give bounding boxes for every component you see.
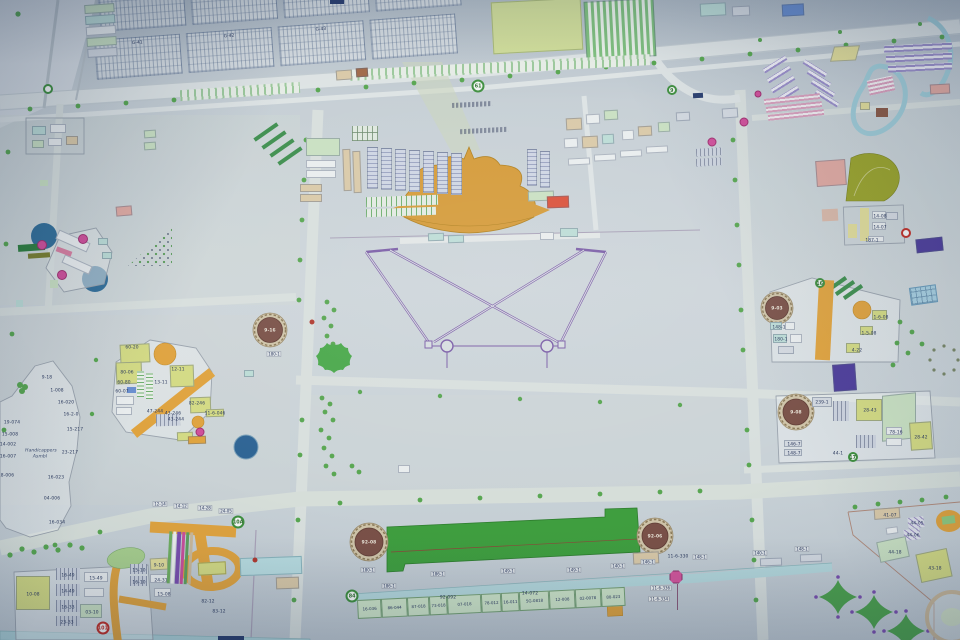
building <box>85 14 116 25</box>
map-label: 43-244 <box>168 417 184 422</box>
red-building <box>547 196 569 209</box>
olive-fan <box>846 153 899 201</box>
map-label: 9-08 <box>790 410 801 415</box>
building <box>40 180 48 186</box>
map-label: 187-1 <box>865 238 878 243</box>
building <box>566 118 583 131</box>
map-label: 11-6-046 <box>205 411 226 416</box>
building <box>782 3 805 16</box>
map-badge <box>196 428 205 437</box>
building <box>146 373 153 399</box>
parking-block <box>369 13 458 59</box>
star-park <box>819 580 857 614</box>
parking-block: G-42 <box>186 27 275 73</box>
building <box>48 138 62 146</box>
map-label: 82-246 <box>189 401 205 406</box>
building <box>833 401 849 421</box>
boxed-label: 11-6-334 <box>648 596 669 602</box>
map-badge: 9 <box>667 85 677 95</box>
map-label: 80-06 <box>120 370 133 375</box>
barracks-block <box>451 153 462 195</box>
map-tag: 186-1 <box>382 583 397 589</box>
map-tag: 149-1 <box>567 567 582 573</box>
map-label: 15-008 <box>2 432 18 437</box>
map-label: 18-006 <box>0 473 14 478</box>
map-label: 78-16 <box>889 430 902 435</box>
barracks-block <box>437 152 448 194</box>
building <box>244 370 254 377</box>
building <box>84 3 115 14</box>
map-tag: 186-1 <box>431 571 446 577</box>
map-badge <box>253 558 258 563</box>
map-label: 60-07 <box>115 389 128 394</box>
map-label: 15-08 <box>157 592 170 597</box>
map-label: 14-072 <box>522 591 538 596</box>
building <box>218 636 244 640</box>
warehouse-cell: 02-0078 <box>575 588 602 608</box>
building <box>620 149 642 157</box>
building <box>306 160 336 168</box>
map-label: 15-217 <box>67 427 83 432</box>
map-tag: 149-1 <box>501 568 516 574</box>
pond-basin <box>909 284 938 306</box>
barracks-block <box>423 151 434 193</box>
building <box>300 184 322 192</box>
boxed-label: 11-6-336 <box>650 585 671 591</box>
map-label: 14-002 <box>0 442 16 447</box>
map-label: 4-22 <box>852 348 862 353</box>
map-tag: 12-14 <box>153 501 168 507</box>
map-badge <box>57 270 67 280</box>
map-tag: 24-05 <box>219 508 234 514</box>
map-label: 16-020 <box>58 400 74 405</box>
building <box>800 554 822 563</box>
map-label: 16-2-0 <box>63 412 78 417</box>
map-badge: 16 <box>815 278 825 288</box>
building <box>676 112 690 122</box>
map-label: 11-6-330 <box>668 554 689 559</box>
map-badge: 17 <box>848 452 858 462</box>
building <box>860 102 870 110</box>
map-label: 60-20 <box>125 345 138 350</box>
building <box>50 124 66 133</box>
map-label: 16-49 <box>61 573 74 578</box>
building <box>137 371 144 397</box>
building <box>276 577 299 590</box>
barracks-block <box>367 147 378 189</box>
map-badge <box>708 138 717 147</box>
left-building-stack <box>84 3 118 60</box>
map-badge: 101 <box>97 622 110 635</box>
building <box>602 134 615 145</box>
building <box>86 25 117 36</box>
barracks-block <box>527 149 537 186</box>
sports-field <box>491 0 584 54</box>
building <box>32 126 46 135</box>
warehouse-cell: 16-036 <box>357 599 382 619</box>
building <box>790 334 802 343</box>
building <box>778 346 794 354</box>
map-label: 14-49 <box>61 589 74 594</box>
building <box>700 2 727 16</box>
map-label: 148-7 <box>787 451 800 456</box>
purple-building <box>915 237 943 254</box>
map-label: 83-12 <box>212 609 225 614</box>
building <box>622 130 635 141</box>
map-label: 92-08 <box>362 540 377 545</box>
barracks-block <box>395 149 406 191</box>
map-label: 28-42 <box>914 435 927 440</box>
building <box>564 138 579 149</box>
gear-park <box>316 343 352 373</box>
map-badge: 61 <box>472 80 485 93</box>
building <box>87 47 118 58</box>
striped-hall <box>584 0 657 60</box>
map-label: Asmbl <box>33 454 47 459</box>
parking-block: G-43 <box>278 20 367 66</box>
building <box>646 145 668 153</box>
map-label: 03-10 <box>85 610 98 615</box>
map-tag: 180-1 <box>361 567 376 573</box>
building <box>658 122 671 133</box>
photographed-site-map: 10-44G-31G-36 G-41G-42G-43 <box>0 0 960 640</box>
map-label: 146-7 <box>787 442 800 447</box>
building <box>568 157 590 165</box>
map-label: 9-18 <box>42 375 52 380</box>
building <box>886 438 902 446</box>
building <box>582 136 599 149</box>
map-label: 239-1 <box>815 400 828 405</box>
map-label: 1-5-08 <box>861 331 876 336</box>
map-badge <box>37 240 47 250</box>
greenhouse-strips <box>167 531 198 584</box>
building <box>300 194 322 202</box>
map-tag: 180-1 <box>267 351 282 357</box>
building <box>693 93 703 99</box>
map-label: 9-03 <box>771 306 782 311</box>
map-label: 14-07 <box>873 225 886 230</box>
barracks-block <box>409 150 420 192</box>
barracks-block <box>381 148 392 190</box>
track-infield <box>198 561 227 575</box>
map-tag: 140-1 <box>611 563 626 569</box>
map-label: 16-034 <box>49 520 65 525</box>
map-badge <box>43 84 53 94</box>
building <box>848 224 857 238</box>
building <box>352 151 361 193</box>
building <box>398 465 410 473</box>
purple-building <box>832 363 857 392</box>
map-label: 60-80 <box>117 380 130 385</box>
building <box>144 130 157 139</box>
building <box>604 110 619 121</box>
map-badge: 10A <box>232 516 245 529</box>
map-label: 1-008 <box>50 388 63 393</box>
pink-striped-rows <box>764 96 826 122</box>
building <box>822 209 839 222</box>
building <box>50 280 58 288</box>
map-label: 92-092 <box>440 595 456 600</box>
long-green-building <box>387 508 640 572</box>
map-label: 44-18 <box>888 550 901 555</box>
map-label: 44-1 <box>833 451 843 456</box>
map-badge <box>310 320 315 325</box>
building <box>116 407 132 415</box>
map-label: 43-246 <box>165 411 181 416</box>
building <box>815 159 847 187</box>
building <box>760 558 782 567</box>
building <box>856 435 876 448</box>
warehouse-cell: 87-018 <box>407 596 430 616</box>
map-label: 1-6-08 <box>873 315 888 320</box>
map-badge <box>740 118 749 127</box>
map-label: 82-12 <box>201 599 214 604</box>
building <box>116 396 134 405</box>
building <box>722 107 739 118</box>
building <box>16 300 23 307</box>
building <box>540 232 554 240</box>
building <box>98 238 108 245</box>
map-badge <box>755 91 762 98</box>
star-park <box>855 595 893 629</box>
map-badge <box>78 234 88 244</box>
map-label: 44-06 <box>906 533 919 538</box>
warehouse-cell: 80-023 <box>601 587 626 607</box>
map-label: 44-05 <box>910 521 923 526</box>
map-tag: 14-28 <box>198 505 213 511</box>
map-label: 19-074 <box>4 420 20 425</box>
warehouse-cell: 78-012 <box>481 593 502 613</box>
tank-stem <box>677 584 678 610</box>
building <box>32 140 44 148</box>
barracks-block <box>540 151 550 188</box>
map-badge <box>670 571 683 584</box>
building <box>86 36 117 47</box>
map-label: 12-11 <box>171 367 184 372</box>
map-badge <box>901 228 911 238</box>
building <box>886 212 898 220</box>
warehouse-cell: 86-044 <box>381 598 408 618</box>
map-label: 43-18 <box>928 566 941 571</box>
building <box>342 149 351 191</box>
map-tag: 146-1 <box>641 559 656 565</box>
building <box>102 252 112 259</box>
map-label: 24-31 <box>154 578 167 583</box>
pool <box>240 556 303 576</box>
building <box>356 68 369 78</box>
map-label: 92-06 <box>648 534 663 539</box>
map-label: 16-023 <box>48 475 64 480</box>
building <box>638 126 653 137</box>
map-label: 10-08 <box>26 592 39 597</box>
building <box>330 0 344 4</box>
map-label: 23-33 <box>60 620 73 625</box>
building <box>560 228 578 237</box>
warehouse-cell: 16-011 <box>501 592 520 612</box>
map-label: 15-49 <box>89 576 102 581</box>
warehouse-cell: 12-008 <box>549 589 576 609</box>
building <box>785 322 795 330</box>
map-label: 16-33 <box>61 605 74 610</box>
map-label: 13-11 <box>154 380 167 385</box>
building <box>428 233 444 242</box>
map-label: 16-10 <box>132 580 145 585</box>
map-tag: 148-1 <box>693 554 708 560</box>
map-label: 148-1 <box>772 325 785 330</box>
map-label: 41-07 <box>883 513 896 518</box>
map-label: 04-006 <box>44 496 60 501</box>
map-label: 23-217 <box>62 450 78 455</box>
map-label: 9-16 <box>264 328 275 333</box>
map-tag: 14-12 <box>174 503 189 509</box>
building <box>336 69 353 80</box>
star-park <box>887 614 925 640</box>
building <box>116 205 133 216</box>
map-badge: 84 <box>346 590 359 603</box>
map-label: 180-1 <box>774 337 787 342</box>
building <box>352 126 378 141</box>
building <box>66 136 78 145</box>
building <box>448 235 464 244</box>
building <box>930 83 950 94</box>
building <box>188 436 206 445</box>
map-label: Handicappers <box>25 448 57 453</box>
map-label: 9-10 <box>154 563 164 568</box>
map-label: 16-007 <box>0 454 16 459</box>
building <box>306 138 340 156</box>
building <box>84 588 104 597</box>
map-tag: 140-1 <box>753 550 768 556</box>
map-label: 47-244 <box>147 409 163 414</box>
building <box>306 170 336 178</box>
building <box>144 142 157 151</box>
map-paper: 10-44G-31G-36 G-41G-42G-43 <box>0 0 960 640</box>
map-label: 15-10 <box>132 568 145 573</box>
building <box>586 114 601 125</box>
promenade-walkways <box>366 249 606 368</box>
building <box>594 153 616 161</box>
building <box>732 6 750 17</box>
building <box>876 108 888 117</box>
map-label: 14-08 <box>873 214 886 219</box>
map-label: 28-43 <box>863 408 876 413</box>
map-tag: 148-1 <box>795 546 810 552</box>
